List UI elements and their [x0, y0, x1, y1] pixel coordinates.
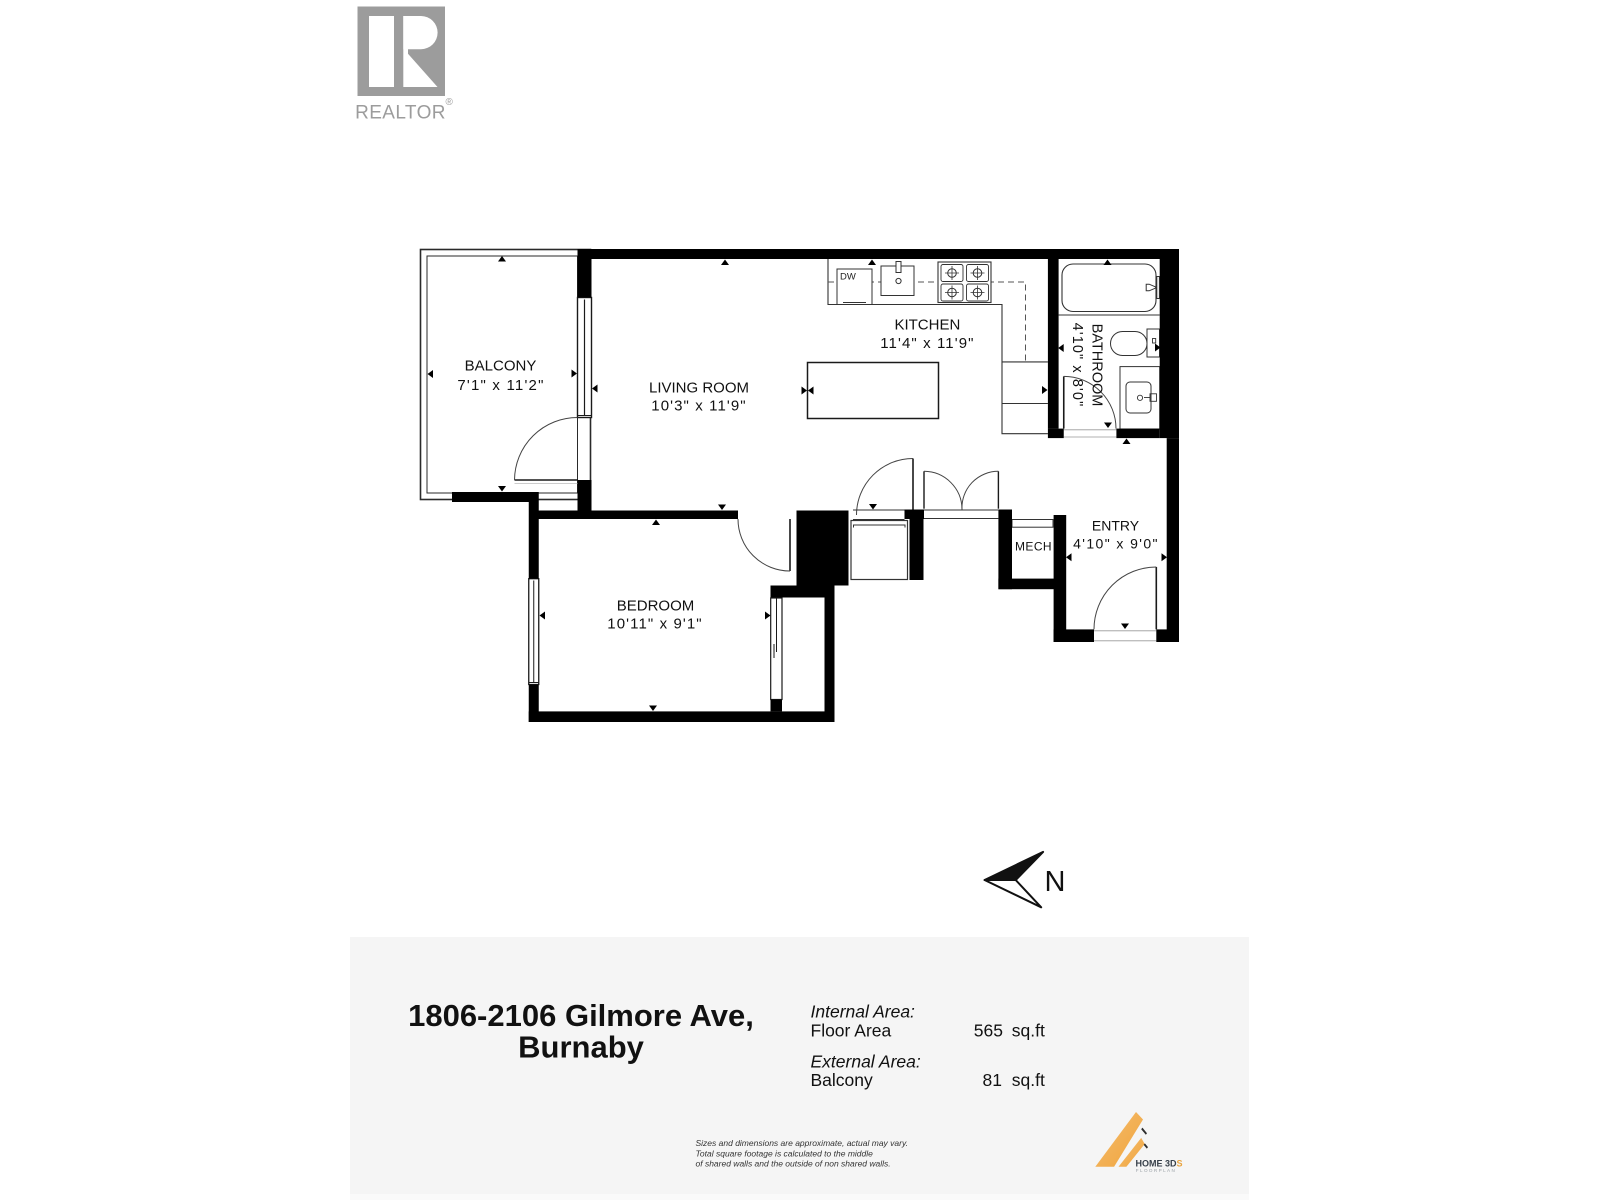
svg-text:Floor Area: Floor Area [811, 1021, 892, 1041]
svg-text:Internal Area:: Internal Area: [811, 1002, 916, 1022]
svg-text:10'11" x 9'1": 10'11" x 9'1" [607, 616, 702, 633]
svg-text:4'10" x 9'0": 4'10" x 9'0" [1073, 536, 1159, 552]
svg-text:BEDROOM: BEDROOM [617, 598, 695, 615]
svg-text:of shared walls and the outsid: of shared walls and the outside of non s… [696, 1159, 891, 1169]
svg-text:sq.ft: sq.ft [1012, 1021, 1045, 1041]
svg-text:10'3" x 11'9": 10'3" x 11'9" [651, 398, 746, 415]
svg-text:sq.ft: sq.ft [1012, 1070, 1045, 1090]
svg-text:ENTRY: ENTRY [1092, 518, 1140, 534]
svg-text:Sizes and dimensions are appro: Sizes and dimensions are approximate, ac… [696, 1138, 908, 1148]
svg-text:BALCONY: BALCONY [465, 358, 537, 375]
svg-text:External Area:: External Area: [811, 1052, 921, 1072]
svg-text:Balcony: Balcony [811, 1070, 874, 1090]
svg-text:Burnaby: Burnaby [518, 1030, 645, 1065]
svg-text:565: 565 [974, 1021, 1003, 1041]
svg-text:®: ® [446, 97, 454, 108]
svg-text:BATHROOM: BATHROOM [1089, 324, 1105, 407]
svg-text:11'4" x 11'9": 11'4" x 11'9" [880, 335, 974, 352]
svg-text:LIVING ROOM: LIVING ROOM [649, 380, 749, 397]
svg-text:1806-2106 Gilmore Ave,: 1806-2106 Gilmore Ave, [408, 998, 754, 1033]
svg-text:FLOORPLAN: FLOORPLAN [1136, 1168, 1176, 1173]
svg-text:DW: DW [840, 272, 856, 283]
svg-text:REALTOR: REALTOR [355, 103, 446, 124]
svg-text:Total square footage is calcul: Total square footage is calculated to th… [696, 1148, 874, 1158]
svg-text:MECH: MECH [1015, 540, 1052, 554]
svg-text:N: N [1045, 866, 1066, 898]
svg-text:KITCHEN: KITCHEN [894, 317, 960, 334]
svg-text:4'10" x 8'0": 4'10" x 8'0" [1069, 323, 1085, 408]
svg-text:7'1" x 11'2": 7'1" x 11'2" [457, 377, 544, 394]
svg-text:81: 81 [983, 1070, 1002, 1090]
